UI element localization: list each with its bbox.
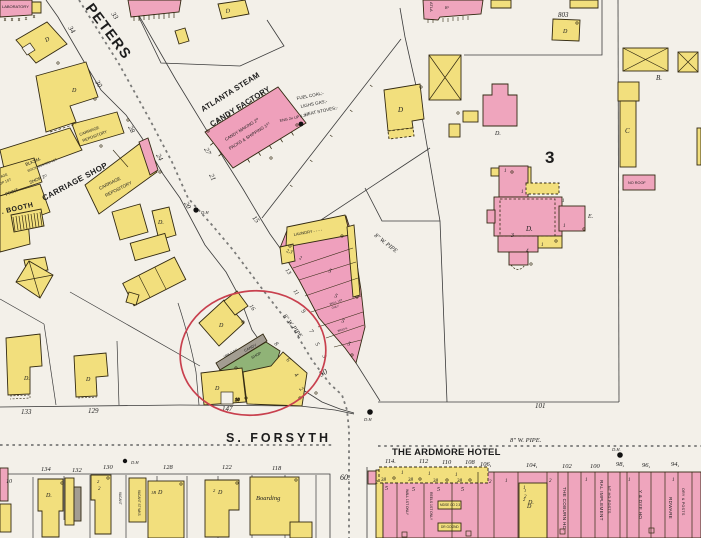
svg-text:C: C xyxy=(625,127,630,135)
svg-text:129: 129 xyxy=(88,407,99,415)
svg-text:MDSE CO 2,3: MDSE CO 2,3 xyxy=(440,503,460,507)
svg-text:D.H: D.H xyxy=(130,460,139,465)
svg-text:10: 10 xyxy=(6,479,12,485)
svg-text:1: 1 xyxy=(562,199,565,204)
svg-text:D.H.: D.H. xyxy=(611,447,621,452)
svg-text:108: 108 xyxy=(465,459,476,466)
svg-text:1: 1 xyxy=(504,169,507,174)
svg-text:60.: 60. xyxy=(340,473,350,482)
svg-text:104,: 104, xyxy=(526,462,538,469)
svg-text:130: 130 xyxy=(103,464,114,471)
svg-text:ATLA: ATLA xyxy=(429,2,434,12)
svg-text:D: D xyxy=(214,386,220,392)
svg-text:1B: 1B xyxy=(151,490,156,495)
svg-text:2: 2 xyxy=(375,480,378,486)
svg-text:1: 1 xyxy=(505,479,508,484)
svg-text:132: 132 xyxy=(72,467,83,474)
svg-text:134: 134 xyxy=(41,466,52,473)
svg-text:D.: D. xyxy=(525,225,533,233)
svg-text:122: 122 xyxy=(222,464,233,471)
svg-text:106,: 106, xyxy=(480,461,492,468)
svg-text:RDWARE: RDWARE xyxy=(668,497,673,519)
svg-text:REELS 1ST ONLY: REELS 1ST ONLY xyxy=(429,492,433,521)
svg-text:1: 1 xyxy=(524,488,526,493)
svg-text:THE COBURN HO.: THE COBURN HO. xyxy=(562,487,567,531)
svg-text:10: 10 xyxy=(235,397,240,402)
svg-text:D.: D. xyxy=(23,376,30,382)
svg-text:VACANT ST WKS: VACANT ST WKS xyxy=(137,490,141,516)
svg-text:D.H: D.H xyxy=(363,417,372,422)
svg-text:1: 1 xyxy=(541,243,544,248)
svg-text:RAL IMPLEMENT: RAL IMPLEMENT xyxy=(599,480,604,521)
svg-text:WALL 1ST ONLY: WALL 1ST ONLY xyxy=(405,489,409,516)
svg-text:NT HO POSTS: NT HO POSTS xyxy=(607,486,611,514)
svg-text:1: 1 xyxy=(672,478,675,483)
svg-text:38: 38 xyxy=(381,478,387,483)
svg-text:110: 110 xyxy=(442,459,452,466)
svg-text:102: 102 xyxy=(562,463,573,470)
svg-text:Boarding: Boarding xyxy=(256,495,281,502)
svg-text:803: 803 xyxy=(558,11,569,19)
svg-text:D: D xyxy=(85,377,91,383)
svg-text:101: 101 xyxy=(535,402,546,410)
svg-text:D: D xyxy=(218,323,224,329)
svg-text:D.: D. xyxy=(157,220,164,226)
svg-text:D: D xyxy=(217,490,223,496)
svg-text:1: 1 xyxy=(585,478,588,483)
svg-text:DR GO 2ND: DR GO 2ND xyxy=(441,525,459,529)
svg-text:128: 128 xyxy=(163,464,174,471)
svg-text:Y & DYE HO: Y & DYE HO xyxy=(638,490,643,519)
svg-text:D: D xyxy=(562,29,568,35)
svg-text:3: 3 xyxy=(545,148,554,167)
svg-text:3: 3 xyxy=(510,233,514,239)
svg-text:D.: D. xyxy=(494,131,501,137)
svg-text:1: 1 xyxy=(428,472,431,477)
svg-text:100: 100 xyxy=(590,463,601,470)
svg-text:133: 133 xyxy=(21,408,32,416)
svg-text:D.: D. xyxy=(45,493,52,499)
svg-text:1: 1 xyxy=(628,478,631,483)
svg-text:ORY & POSTS: ORY & POSTS xyxy=(681,488,685,516)
svg-text:NO ROOF: NO ROOF xyxy=(628,181,646,185)
svg-text:5: 5 xyxy=(461,487,464,493)
svg-text:98,: 98, xyxy=(616,461,625,468)
svg-text:38: 38 xyxy=(433,479,439,484)
svg-text:38: 38 xyxy=(457,479,463,484)
svg-text:S. FORSYTH: S. FORSYTH xyxy=(226,431,331,445)
svg-text:114.: 114. xyxy=(385,458,396,465)
svg-text:D: D xyxy=(397,106,403,114)
svg-text:94,: 94, xyxy=(671,461,680,468)
svg-text:96,: 96, xyxy=(642,462,651,469)
svg-text:118: 118 xyxy=(272,465,282,472)
svg-text:1: 1 xyxy=(455,473,458,478)
svg-text:B.: B. xyxy=(656,74,662,82)
svg-text:D: D xyxy=(526,504,532,510)
svg-text:1: 1 xyxy=(401,471,404,476)
svg-text:112: 112 xyxy=(419,458,429,465)
svg-text:LABORATORY: LABORATORY xyxy=(2,4,29,9)
svg-text:E.: E. xyxy=(587,214,593,220)
svg-text:1: 1 xyxy=(563,224,566,229)
svg-text:5: 5 xyxy=(412,487,415,493)
svg-text:5: 5 xyxy=(437,487,440,493)
svg-text:8" W. PIPE.: 8" W. PIPE. xyxy=(510,437,542,444)
svg-text:D: D xyxy=(157,490,163,496)
svg-text:VACANT: VACANT xyxy=(118,492,122,505)
svg-text:D: D xyxy=(71,88,77,94)
svg-text:THE ARDMORE HOTEL: THE ARDMORE HOTEL xyxy=(392,447,501,458)
svg-text:1: 1 xyxy=(521,190,524,195)
svg-text:D.H: D.H xyxy=(200,210,209,215)
svg-text:38: 38 xyxy=(408,478,414,483)
svg-text:5: 5 xyxy=(385,486,388,492)
